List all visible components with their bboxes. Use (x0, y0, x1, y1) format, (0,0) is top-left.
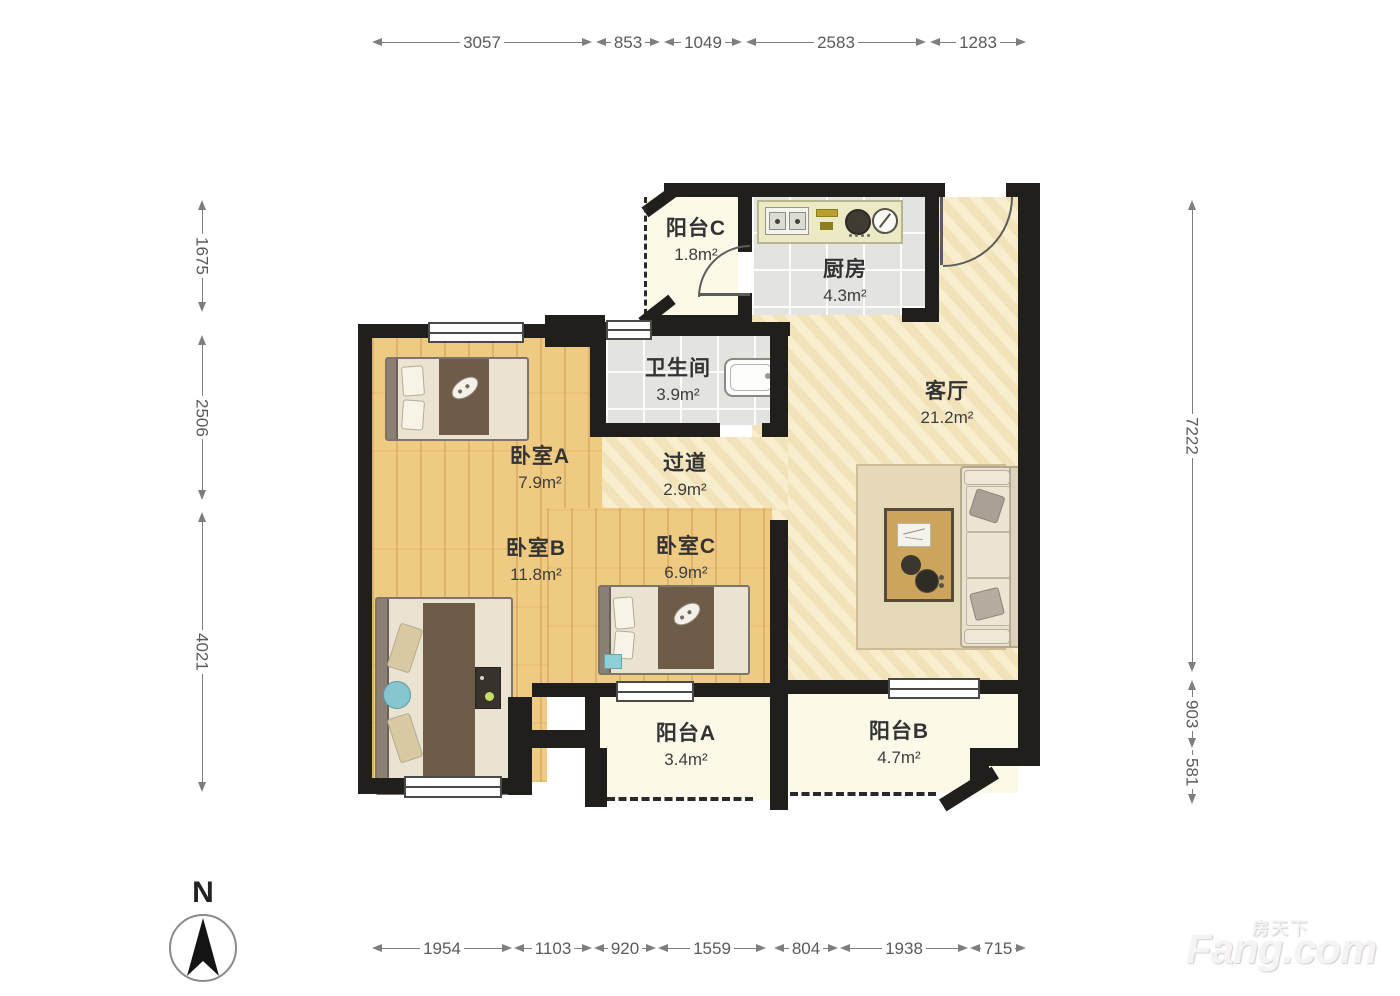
wall-segment (664, 183, 945, 197)
north-arrow-icon: N (166, 878, 240, 989)
wall-segment (970, 748, 1040, 766)
compass-label: N (166, 878, 240, 908)
wall-segment (585, 683, 600, 750)
kitchen-counter (757, 200, 903, 244)
kitchen-sink (765, 207, 809, 235)
range-hood-control (816, 209, 838, 217)
wall-segment (770, 520, 788, 683)
dimension-bottom: 715 (970, 940, 1026, 956)
stove-dial (872, 208, 898, 234)
bedside-lamp (383, 681, 411, 709)
window (616, 681, 694, 702)
balcony-window-dashed (790, 792, 936, 796)
room-label-balcony-c: 阳台C1.8m² (641, 212, 751, 265)
bed-duvet (423, 603, 475, 785)
wall-segment (590, 322, 606, 437)
bed-tv-panel (475, 667, 501, 709)
dimension-left: 2506 (194, 335, 210, 500)
wall-segment (770, 697, 788, 810)
coffee-table (884, 508, 954, 602)
balcony-window-dashed (607, 797, 753, 801)
range-hood-control (820, 222, 833, 230)
wall-segment (532, 730, 587, 748)
fang-watermark: 房天下 Fang.com (1186, 916, 1391, 988)
sofa (960, 466, 1026, 648)
room-label-hallway: 过道2.9m² (630, 447, 740, 500)
bed-duvet (658, 587, 714, 669)
dimension-bottom: 804 (774, 940, 838, 956)
window (888, 678, 980, 699)
wall-segment (902, 308, 939, 322)
room-label-bedroom-a: 卧室A7.9m² (485, 440, 595, 493)
window (428, 322, 524, 343)
bed-decor (448, 372, 483, 404)
room-label-balcony-a: 阳台A3.4m² (631, 717, 741, 770)
bed-headboard (387, 359, 398, 439)
bowl (915, 569, 939, 593)
room-label-kitchen: 厨房4.3m² (790, 253, 900, 306)
room-label-balcony-b: 阳台B4.7m² (844, 715, 954, 768)
dimension-left: 1675 (194, 200, 210, 312)
wall-segment (1018, 183, 1040, 766)
room-label-bedroom-b: 卧室B11.8m² (481, 532, 591, 585)
pillow (401, 399, 425, 430)
dimension-right: 7222 (1184, 200, 1200, 672)
bed-single-c (598, 585, 750, 675)
dimension-top: 1283 (930, 34, 1026, 50)
stove-burner (845, 209, 871, 235)
pillow (613, 596, 636, 630)
bed-duvet (439, 359, 489, 435)
room-label-bathroom: 卫生间3.9m² (623, 352, 733, 405)
wall-segment (358, 324, 372, 794)
sofa-armrest (964, 470, 1010, 485)
compass-needle (166, 910, 240, 984)
dimension-bottom: 1559 (658, 940, 766, 956)
bed-decor (670, 598, 705, 630)
pillow (386, 622, 423, 673)
wall-segment (770, 322, 788, 437)
dimension-top: 2583 (746, 34, 926, 50)
dimension-top: 853 (596, 34, 660, 50)
dimension-right: 903 (1184, 680, 1200, 748)
window (404, 776, 502, 798)
bed-double-b (375, 597, 513, 795)
pillow (386, 712, 423, 763)
wall-segment (925, 183, 939, 313)
wall-segment (762, 423, 788, 437)
wall-segment (585, 748, 607, 807)
dimension-top: 1049 (664, 34, 742, 50)
dimension-bottom: 1954 (372, 940, 512, 956)
dimension-bottom: 920 (594, 940, 656, 956)
room-label-living-room: 客厅21.2m² (892, 375, 1002, 428)
dimension-right: 581 (1184, 750, 1200, 804)
room-label-bedroom-c: 卧室C6.9m² (631, 530, 741, 583)
wall-segment (508, 697, 532, 795)
dimension-bottom: 1938 (840, 940, 968, 956)
window (606, 320, 652, 340)
pillow (401, 365, 425, 396)
sofa-armrest (964, 629, 1010, 644)
dimension-bottom: 1103 (514, 940, 592, 956)
floorplan-image: 阳台C1.8m² 厨房4.3m² 卫生间3.9m² 过道2.9m² 客厅21.2… (0, 0, 1400, 996)
bed-single-a (385, 357, 529, 441)
dimension-left: 4021 (194, 512, 210, 792)
dimension-top: 3057 (372, 34, 592, 50)
nightstand (604, 654, 622, 669)
wall-segment (590, 423, 720, 437)
table-tray (897, 523, 931, 547)
